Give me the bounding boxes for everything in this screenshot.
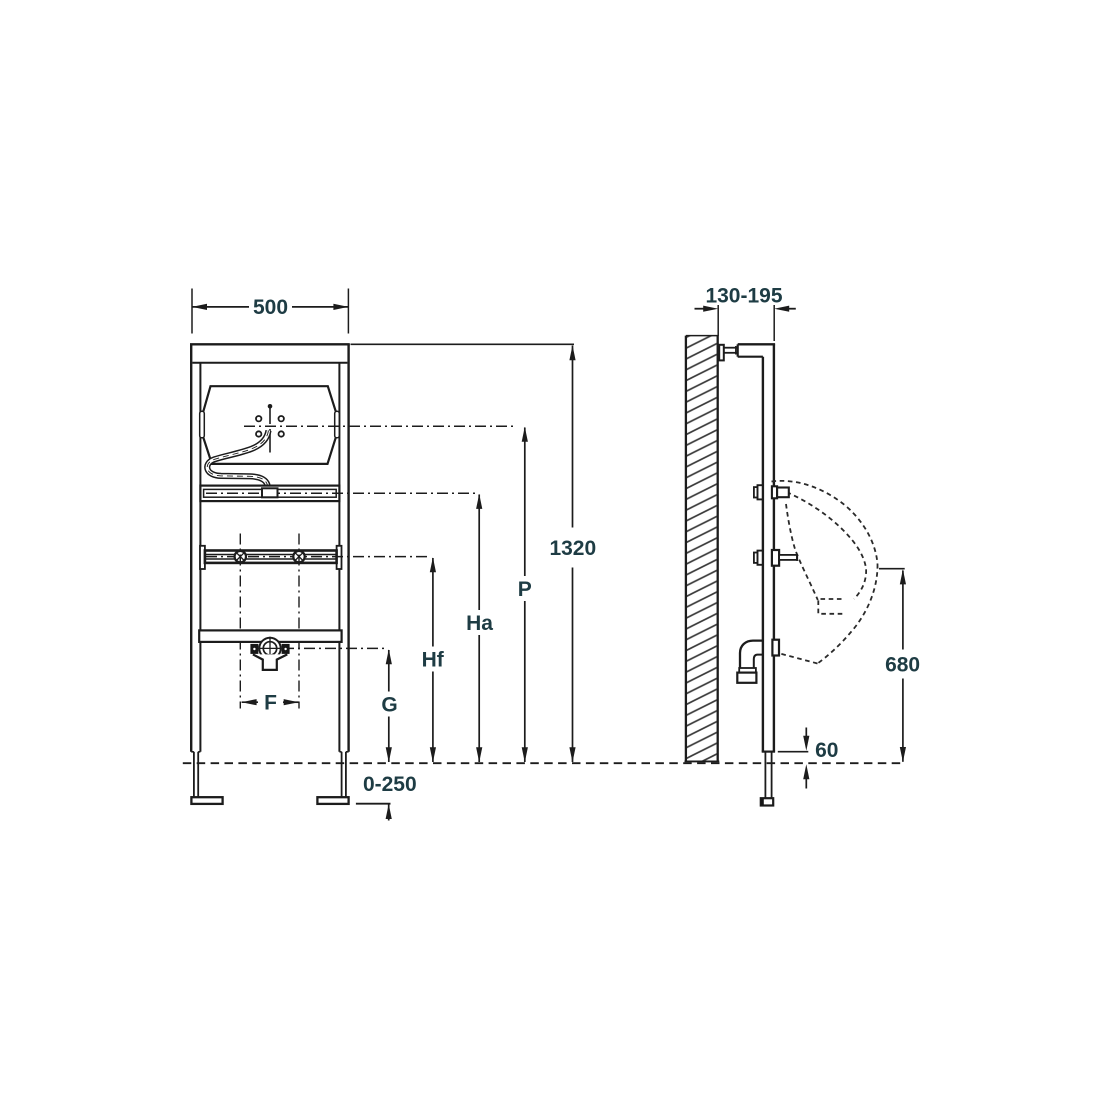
svg-text:Ha: Ha: [466, 612, 493, 635]
svg-text:G: G: [381, 693, 397, 716]
svg-text:F: F: [264, 691, 277, 714]
svg-text:680: 680: [885, 654, 920, 677]
svg-text:60: 60: [815, 739, 838, 762]
svg-text:1320: 1320: [549, 537, 596, 560]
svg-text:0-250: 0-250: [363, 773, 417, 796]
svg-text:Hf: Hf: [422, 648, 445, 671]
svg-text:500: 500: [253, 296, 288, 319]
svg-text:130-195: 130-195: [705, 285, 782, 308]
svg-text:P: P: [518, 578, 532, 601]
